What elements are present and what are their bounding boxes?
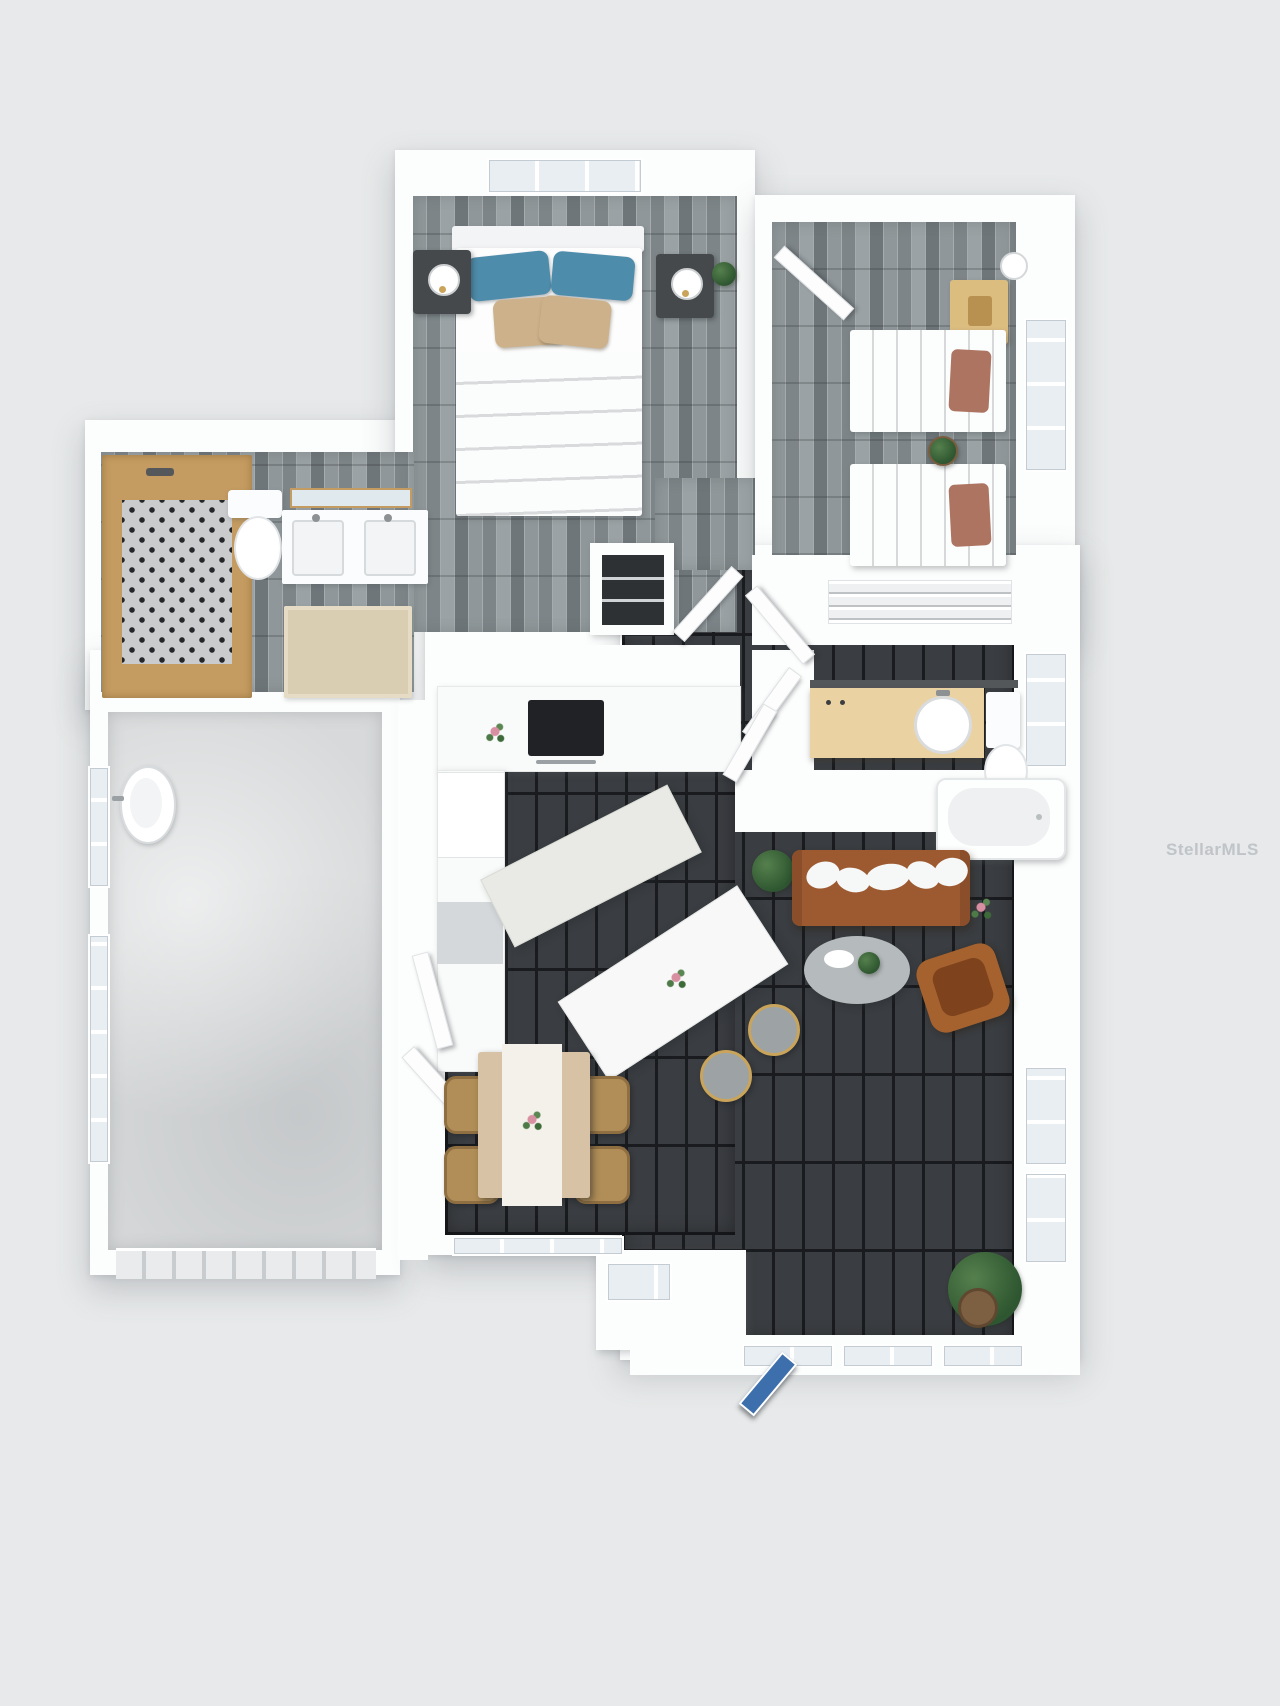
flower-plant [966,892,996,926]
tub-drain [1036,814,1042,820]
table-decor-tray [824,950,854,968]
round-sink [914,696,972,754]
oven-handle [536,760,596,764]
faucet [312,514,320,522]
toilet-tank [228,490,282,518]
vanity-knob [840,700,845,705]
window-dining-bottom [452,1236,624,1256]
potted-plant [752,850,794,892]
vanity2-backsplash [810,680,1018,688]
desk-chair-notch [968,296,992,326]
sink-basin [292,520,344,576]
bar-stool [748,1004,800,1056]
window-bedroom2-right [1024,318,1068,472]
coffee-table [804,936,910,1004]
window-bonus-right-1 [1024,1066,1068,1166]
pillow-rust [948,349,991,413]
closet-shelf-line [602,599,664,602]
window-garage-left-1 [88,766,110,888]
vanity-knob [826,700,831,705]
pillow-blue [466,250,552,302]
sofa-arm [792,850,802,926]
wall-kitchen-north [437,645,740,688]
refrigerator [437,772,505,858]
floor-plan-render: StellarMLS [0,0,1280,1706]
faucet [384,514,392,522]
bath-rug [284,606,412,698]
cooktop [528,700,604,756]
appliance [437,902,503,964]
utility-sink-basin [130,778,162,828]
lamp-base [439,286,446,293]
red-flowers [482,718,508,748]
lamp-base [682,290,689,297]
bed-duvet [456,352,642,516]
vanity-mirror [290,488,412,508]
window-bath2-right [1024,652,1068,768]
window-vestibule [606,1262,672,1302]
toilet-bowl [234,516,282,580]
faucet [936,690,950,696]
shower-floor [122,500,232,664]
sphere-lamp [1000,252,1028,280]
window-bonus-bottom-3 [942,1344,1024,1368]
garage-door [116,1248,376,1279]
wire-shelf-closet [828,580,1012,624]
window-bonus-right-2 [1024,1172,1068,1264]
toilet2-tank [986,692,1020,748]
closet-shelf-line [602,577,664,580]
pillow-rust [948,483,991,547]
potted-plant [928,436,958,466]
closet-interior [602,555,664,625]
pillow-blue [550,251,636,302]
watermark: StellarMLS [1166,840,1278,862]
potted-plant [712,262,736,286]
utility-faucet [112,796,124,801]
bathtub-basin [948,788,1050,846]
window-primary-bedroom-top [487,158,643,194]
shower-head [146,468,174,476]
dining-flower-centerpiece [518,1106,546,1136]
plant-pot [958,1288,998,1328]
island-flower-centerpiece [662,964,690,994]
window-bonus-bottom-2 [842,1344,934,1368]
pillow-tan [538,294,613,349]
bar-stool [700,1050,752,1102]
sink-basin [364,520,416,576]
table-plant [858,952,880,974]
window-garage-left-2 [88,934,110,1164]
